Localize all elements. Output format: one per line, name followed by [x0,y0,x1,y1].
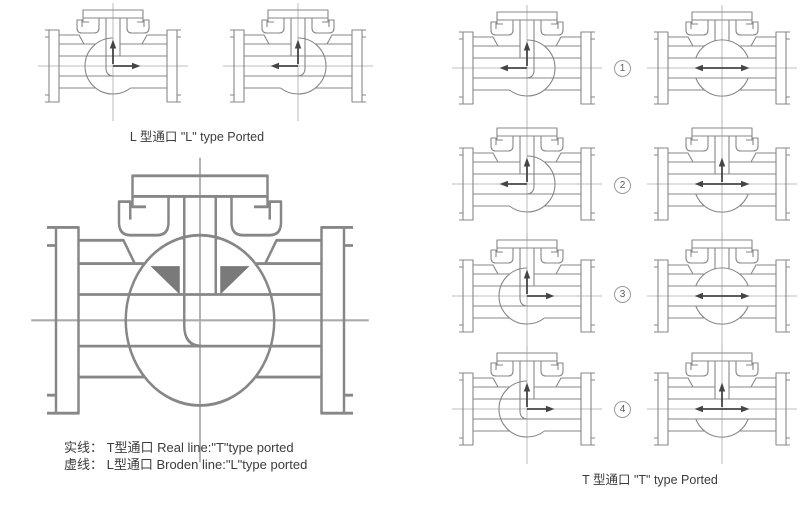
valve-diagram-row4-l-view [447,343,607,467]
valve-diagram-row3-flow-view [642,230,802,354]
valve-diagram-row2-l-view [447,118,607,242]
diagram-canvas: L 型通口 "L" type Ported 实线： T型通口 Real line… [0,0,802,508]
valve-diagram-row2-flow-view [642,118,802,242]
valve-diagram-l-type-1 [33,0,193,124]
t-type-caption: T 型通口 "T" type Ported [510,469,790,488]
legend-solid-line: 实线： T型通口 Real line:"T"type ported [64,439,307,456]
valve-diagram-row1-l-view [447,2,607,126]
position-number-badge: 3 [614,286,631,303]
valve-diagram-row1-flow-view [642,2,802,126]
position-number-badge: 1 [614,60,631,77]
valve-diagram-row4-flow-view [642,343,802,467]
position-number-badge: 4 [614,401,631,418]
line-type-legend: 实线： T型通口 Real line:"T"type ported 虚线： L型… [64,439,307,473]
position-number-badge: 2 [614,177,631,194]
l-type-caption: L 型通口 "L" type Ported [57,126,337,145]
legend-dashed-line: 虚线： L型通口 Broden line:"L"type ported [64,456,307,473]
valve-diagram-l-type-2 [218,0,378,124]
valve-diagram-row3-l-view [447,230,607,354]
valve-diagram-section [20,150,380,470]
